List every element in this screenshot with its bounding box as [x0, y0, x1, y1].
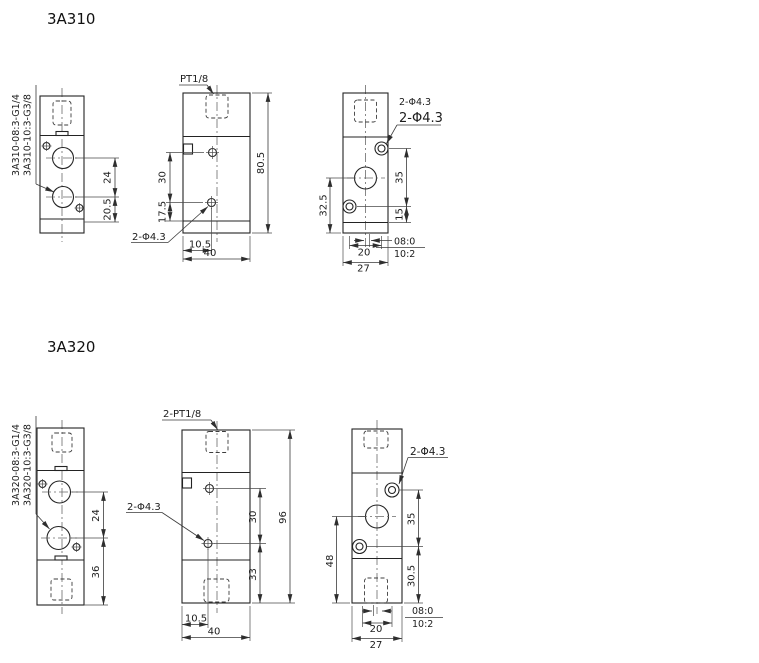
- dim-hole-to-base: 30.5: [407, 565, 418, 587]
- hidden-port-hole: [365, 578, 388, 603]
- view-3a320-left: 3A320-08:3-G1/4 3A320-10:3-G3/8 24 36: [11, 416, 108, 614]
- view-3a310-side: 2-Φ4.3 2-Φ4.3 35 15 32.5 20 27: [319, 85, 443, 275]
- mount-hole-label: 2-Φ4.3: [127, 502, 161, 513]
- hidden-port-hole: [364, 431, 388, 448]
- dim-port-spacing: 24: [103, 171, 114, 184]
- dim-body-height: 96: [278, 511, 289, 524]
- hidden-port-hole: [51, 579, 72, 600]
- dim-hole-spacing: 35: [407, 513, 418, 526]
- tab-tick: [55, 556, 67, 560]
- offset-note-08: 08:0: [394, 237, 415, 248]
- dim-hole-spacing-x: 20: [370, 624, 383, 635]
- dim-hole-to-base: 33: [248, 568, 259, 581]
- dim-port-to-base: 20.5: [103, 198, 114, 220]
- dim-body-depth: 27: [370, 640, 383, 651]
- dim-body-width: 40: [208, 627, 221, 638]
- dim-mount-hole-spacing: 30: [248, 511, 259, 524]
- dim-port-to-base: 48: [325, 555, 336, 568]
- hole-label-large: 2-Φ4.3: [399, 111, 443, 126]
- dim-body-depth: 27: [357, 264, 370, 275]
- offset-note-10: 10:2: [412, 619, 433, 630]
- dim-hole-to-base: 15: [395, 208, 406, 221]
- model-label-g14: 3A320-08:3-G1/4: [11, 424, 22, 506]
- model-label-g38: 3A310-10:3-G3/8: [23, 94, 34, 176]
- section-3a310: 3A310 3A310-08:3-G1/4 3A310-10:3-G3/8: [11, 10, 443, 275]
- view-3a310-front: PT1/8 30 17.5 2-Φ4.3 10.5: [131, 74, 272, 262]
- dim-port-to-base: 32.5: [319, 194, 330, 216]
- offset-note-10: 10:2: [394, 249, 415, 260]
- valve-body-outline: [182, 430, 250, 603]
- valve-body-outline: [37, 428, 84, 605]
- view-3a320-side: 2-Φ4.3 35 30.5 48 20 27 08:0: [325, 420, 448, 651]
- valve-body-outline: [183, 93, 250, 233]
- section-title-3a320: 3A320: [47, 338, 95, 356]
- view-3a310-left: 3A310-08:3-G1/4 3A310-10:3-G3/8 24 20.5: [11, 85, 119, 242]
- drawing-page: 3A310 3A310-08:3-G1/4 3A310-10:3-G3/8: [0, 0, 759, 663]
- counterbore-hole: [343, 200, 356, 213]
- mount-hole-label: 2-Φ4.3: [132, 232, 166, 243]
- section-3a320: 3A320 3A320-08:3-G1/4 3A320-10:3-G3/8: [11, 338, 448, 651]
- dim-hole-spacing: 35: [395, 171, 406, 184]
- section-title-3a310: 3A310: [47, 10, 95, 28]
- dim-body-width: 40: [204, 248, 217, 259]
- model-label-g14: 3A310-08:3-G1/4: [11, 94, 22, 176]
- offset-note-08: 08:0: [412, 606, 433, 617]
- dim-hole-spacing-x: 20: [358, 248, 371, 259]
- dim-hole-offset-x: 10.5: [185, 614, 207, 625]
- tab-tick: [55, 467, 67, 471]
- pilot-port-label: PT1/8: [180, 74, 208, 85]
- side-tab: [183, 478, 192, 488]
- view-3a320-front: 2-PT1/8 2-Φ4.3 30 33 96: [126, 409, 295, 641]
- hole-label: 2-Φ4.3: [410, 446, 445, 458]
- tab-tick: [56, 132, 68, 136]
- hole-label-small: 2-Φ4.3: [399, 97, 431, 108]
- counterbore-hole: [375, 142, 388, 155]
- dim-port-to-base: 36: [91, 566, 102, 579]
- counterbore-hole: [385, 483, 399, 497]
- pilot-port-label: 2-PT1/8: [163, 409, 201, 420]
- model-label-g38: 3A320-10:3-G3/8: [23, 424, 34, 506]
- dim-hole-to-base: 17.5: [158, 201, 169, 223]
- dim-mount-hole-spacing: 30: [158, 171, 169, 184]
- dim-body-height: 80.5: [256, 152, 267, 174]
- counterbore-hole: [353, 540, 367, 554]
- drawing-canvas: 3A310 3A310-08:3-G1/4 3A310-10:3-G3/8: [0, 0, 759, 663]
- dim-port-spacing: 24: [91, 509, 102, 522]
